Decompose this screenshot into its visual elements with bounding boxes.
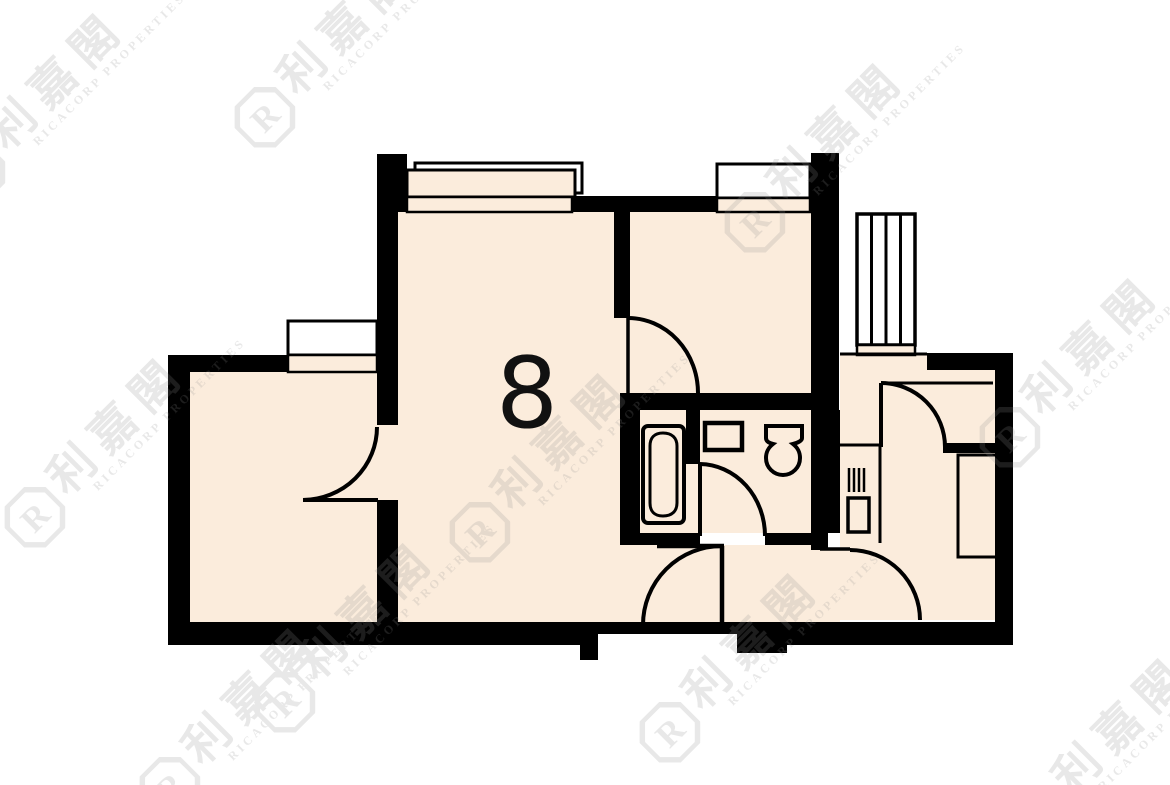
wall-porch-jut-left bbox=[580, 645, 598, 660]
left-bedroom-window bbox=[288, 321, 377, 355]
room-number-label: 8 bbox=[496, 337, 558, 451]
hallway-floor bbox=[620, 545, 812, 622]
wall-bathroom-top bbox=[620, 393, 820, 410]
wall-bathroom-left bbox=[620, 410, 640, 545]
wall-left-bedroom-left bbox=[168, 355, 190, 645]
wall-top-middle bbox=[572, 196, 717, 212]
wall-divider2 bbox=[614, 212, 630, 318]
wall-divider1-upper bbox=[377, 212, 398, 425]
right-bedroom-window-sill bbox=[717, 198, 810, 212]
floorplan-page: 8 R利嘉閣RICACORP PROPERTIES R利嘉閣RICACORP P… bbox=[0, 0, 1170, 785]
wall-bottom bbox=[168, 622, 1013, 645]
right-bedroom-window bbox=[717, 164, 810, 198]
left-bedroom-floor bbox=[190, 372, 377, 622]
wall-left-bedroom-top bbox=[168, 355, 290, 372]
living-bay-window-inner bbox=[407, 170, 575, 197]
wall-column-right bbox=[811, 153, 839, 430]
wall-bathroom-right bbox=[811, 410, 840, 533]
wall-bathroom-bottom-left bbox=[620, 533, 700, 545]
wall-column-left bbox=[377, 154, 407, 212]
wall-kitchen-door-stub bbox=[943, 443, 997, 453]
living-bay-window-sill bbox=[407, 197, 572, 212]
right-bedroom-floor bbox=[630, 212, 811, 393]
wall-kitchen-right bbox=[995, 353, 1013, 645]
floorplan-drawing: 8 bbox=[0, 0, 1170, 785]
wall-porch-jut-right bbox=[737, 645, 787, 653]
entrance-porch bbox=[598, 634, 737, 662]
toilet-icon bbox=[766, 426, 802, 475]
left-bedroom-doorway bbox=[377, 425, 398, 500]
wall-tub-divider bbox=[686, 410, 700, 464]
wall-divider1-lower bbox=[377, 500, 398, 623]
left-bedroom-window-sill bbox=[288, 355, 377, 372]
hall-kitchen-passage bbox=[811, 550, 840, 622]
